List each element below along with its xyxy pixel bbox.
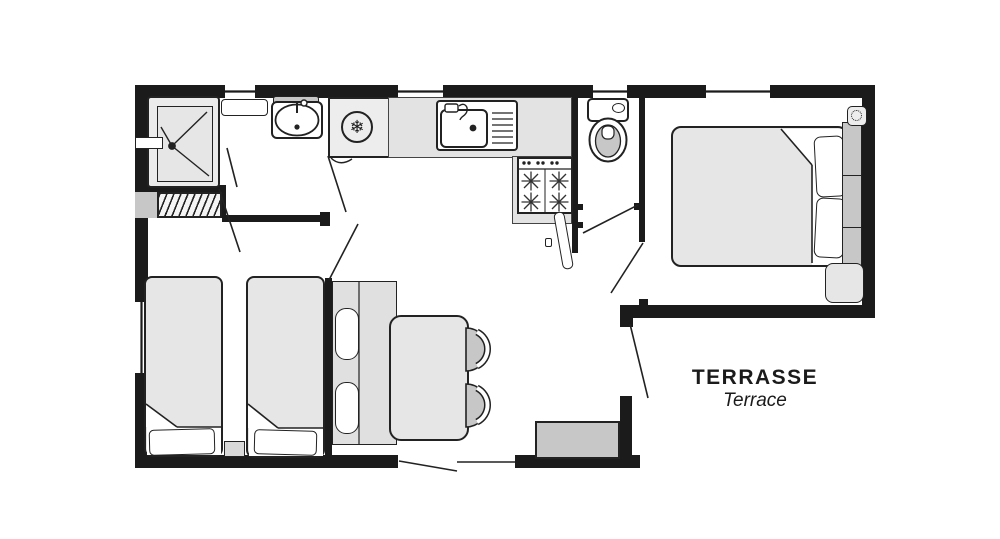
toilet-bowl-icon <box>590 119 627 162</box>
fridge-door-arc <box>331 158 352 163</box>
wc-doorstop-tick-2 <box>578 222 583 228</box>
pillow-icon <box>149 428 216 456</box>
sink-bowl <box>440 109 488 148</box>
wall-hallway <box>222 215 322 222</box>
shower-tray <box>157 106 213 182</box>
wall-top-4 <box>627 85 706 98</box>
entrance-step-icon <box>535 421 620 459</box>
wc-doorstop-tick-1 <box>578 204 583 210</box>
wc-door-handle <box>545 238 552 247</box>
between-beds-nightstand <box>224 441 245 457</box>
headboard-segment <box>842 122 862 177</box>
dining-table-icon <box>389 315 469 441</box>
pillow-icon <box>254 429 318 456</box>
washbasin-icon <box>271 101 323 139</box>
stove-icon <box>517 157 573 214</box>
shower-door-handle <box>135 137 163 149</box>
wall-bedroom-bottom <box>622 305 875 318</box>
toilet-flush-button <box>612 103 625 113</box>
terrace-subtitle: Terrace <box>620 389 890 414</box>
headboard-segment <box>842 175 862 229</box>
chair-icons <box>466 328 488 427</box>
floor-plan: ❄ <box>0 0 1000 539</box>
terrace-title: TERRASSE <box>620 366 890 389</box>
snowflake-glyph: ❄ <box>349 117 364 138</box>
shelf-icon <box>221 99 268 116</box>
wall-bedroom-door-jamb <box>620 305 633 327</box>
wall-hallway-cap <box>320 212 330 226</box>
radiator-icon <box>157 192 222 218</box>
snowflake-icon: ❄ <box>341 111 373 143</box>
wall-top-5 <box>770 85 875 98</box>
left-wall-window-sill <box>135 192 158 218</box>
terrace-label: TERRASSE Terrace <box>620 366 890 414</box>
bench-cushion-icon <box>335 308 359 360</box>
wc-hinge-tick <box>634 203 640 210</box>
wall-partition-bedroom2 <box>325 278 332 462</box>
wall-wc-right <box>639 98 645 242</box>
door-hinge-tick <box>639 299 648 306</box>
lamp-dotted-circle <box>851 110 862 121</box>
bench-cushion-icon <box>335 382 359 434</box>
nightstand-icon <box>825 263 864 303</box>
